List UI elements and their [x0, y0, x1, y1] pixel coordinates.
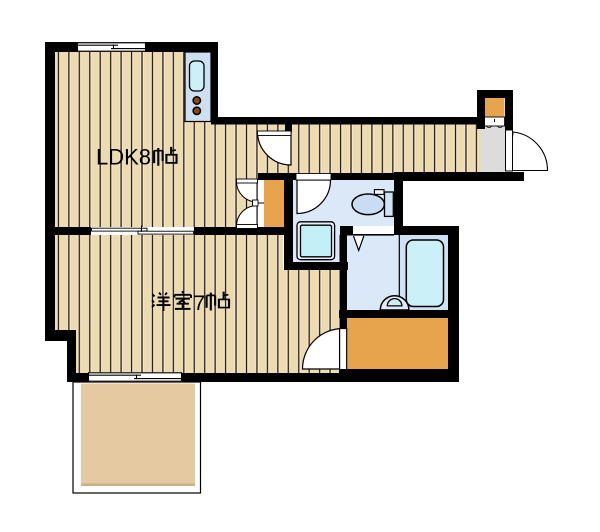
svg-text:LDK8: LDK8 [96, 145, 151, 170]
svg-text:7: 7 [194, 292, 206, 315]
